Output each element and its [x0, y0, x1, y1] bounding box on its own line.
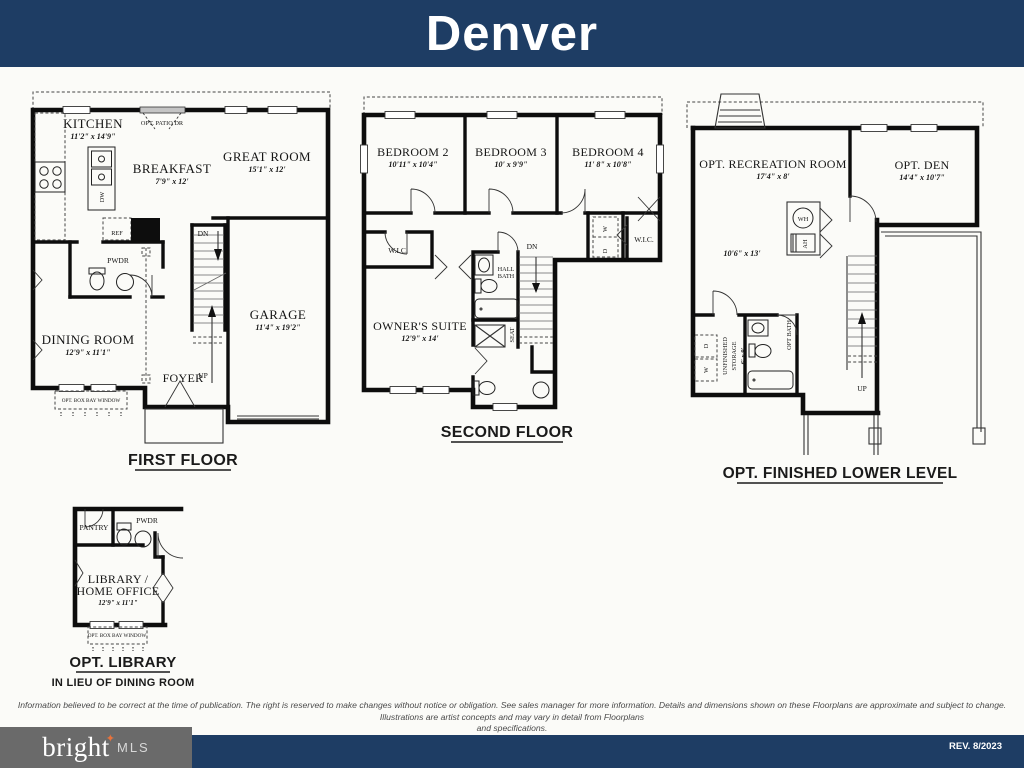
- powder-label: PWDR: [136, 516, 158, 525]
- bedroom3-dim: 10' x 9'9": [495, 160, 528, 169]
- first-floor-title: FIRST FLOOR: [128, 452, 238, 469]
- garage-label: GARAGE: [250, 307, 307, 322]
- brand-text: bright: [42, 732, 110, 763]
- hall-bath-label-1: HALL: [498, 266, 515, 273]
- star-icon: ✦: [106, 732, 115, 745]
- up-label: UP: [857, 384, 867, 393]
- stairs-second-floor: [519, 257, 553, 343]
- second-floor-walls: [364, 97, 662, 407]
- box-bay-label: OPT. BOX BAY WINDOW: [88, 633, 147, 639]
- owners-suite-dim: 12'9" x 14': [402, 334, 440, 343]
- first-floor-labels: KITCHEN 11'2" x 14'9" OPT. PATIO DR BREA…: [42, 116, 311, 470]
- wh-label: WH: [798, 216, 809, 223]
- second-floor-doors: [385, 189, 660, 374]
- sink: [117, 274, 134, 291]
- first-floor-plan: KITCHEN 11'2" x 14'9" OPT. PATIO DR BREA…: [15, 85, 350, 485]
- second-floor-title: SECOND FLOOR: [441, 424, 574, 441]
- floorplan-sheet: Denver: [0, 0, 1024, 768]
- dryer-label: D: [602, 248, 609, 253]
- wic-right-label: W.I.C.: [634, 235, 654, 244]
- storage-dim: 6' x 9': [740, 348, 747, 365]
- library-subtitle: IN LIEU OF DINING ROOM: [52, 677, 195, 689]
- library-doors: [85, 509, 183, 558]
- disclaimer-line-1: Information believed to be correct at th…: [0, 700, 1024, 723]
- hall-bath-label-2: BATH: [498, 273, 515, 280]
- seat-label: SEAT: [509, 327, 516, 342]
- dryer-label: D: [703, 343, 710, 348]
- owners-suite-label: OWNER'S SUITE: [373, 319, 467, 333]
- garage-door: [237, 416, 319, 419]
- sink: [533, 382, 549, 398]
- washer-label: W: [703, 367, 710, 373]
- bedroom3-label: BEDROOM 3: [475, 145, 547, 159]
- box-bay-label: OPT. BOX BAY WINDOW: [62, 398, 121, 404]
- dn-label: DN: [198, 229, 209, 238]
- dw-label: DW: [99, 192, 106, 203]
- breakfast-dim: 7'9" x 12': [156, 177, 190, 186]
- library-label-2: HOME OFFICE: [77, 584, 160, 598]
- storage-label-2: STORAGE: [731, 341, 738, 370]
- great-room-label: GREAT ROOM: [223, 149, 311, 164]
- bulkhead: [715, 94, 765, 128]
- stairs-first-floor: [193, 231, 226, 383]
- bright-mls-logo: bright✦MLS: [0, 727, 192, 768]
- library-dim: 12'9" x 11'1": [98, 599, 137, 607]
- rec-room-label: OPT. RECREATION ROOM: [699, 157, 846, 171]
- wic-left-label: W.I.C.: [388, 246, 408, 255]
- toilet: [90, 272, 104, 290]
- brand-suffix: MLS: [117, 740, 150, 755]
- ah-label: AH: [802, 239, 809, 249]
- storage-label-1: UNFINISHED: [722, 337, 729, 375]
- washer-label: W: [602, 226, 609, 232]
- library-title: OPT. LIBRARY: [69, 654, 176, 671]
- bedroom4-dim: 11' 8" x 10'8": [585, 160, 632, 169]
- garage-dim: 11'4" x 19'2": [256, 323, 301, 332]
- stoop: [145, 409, 223, 443]
- lower-level-title: OPT. FINISHED LOWER LEVEL: [723, 465, 958, 482]
- kitchen-dim: 11'2" x 14'9": [71, 132, 116, 141]
- dining-room-dim: 12'9" x 11'1": [66, 348, 111, 357]
- up-label: UP: [198, 371, 208, 380]
- bedroom2-dim: 10'11" x 10'4": [389, 160, 438, 169]
- stove: [35, 162, 65, 192]
- den-label: OPT. DEN: [895, 158, 950, 172]
- dn-label: DN: [527, 242, 538, 251]
- stairs-lower-level: [847, 256, 877, 378]
- opt-patio-door-label: OPT. PATIO DR: [141, 120, 184, 127]
- rec-room-dim: 17'4" x 8': [757, 172, 791, 181]
- area-dim: 10'6" x 13': [724, 249, 762, 258]
- pantry-label: PANTRY: [80, 523, 109, 532]
- plan-title: Denver: [426, 6, 598, 62]
- opt-bath-label: OPT BATH: [786, 320, 793, 350]
- library-bay-window: [88, 627, 147, 651]
- powder-label: PWDR: [107, 256, 129, 265]
- lower-level-plan: OPT. RECREATION ROOM 17'4" x 8' OPT. DEN…: [685, 88, 1024, 488]
- second-floor-plan: BEDROOM 2 10'11" x 10'4" BEDROOM 3 10' x…: [355, 85, 675, 450]
- bedroom2-label: BEDROOM 2: [377, 145, 449, 159]
- den-dim: 14'4" x 10'7": [899, 173, 944, 182]
- lower-level-walls: [687, 102, 985, 455]
- library-plan: PANTRY PWDR LIBRARY / HOME OFFICE 12'9" …: [55, 495, 260, 700]
- laundry-storage: [695, 335, 717, 381]
- kitchen-label: KITCHEN: [63, 116, 123, 131]
- ref-label: REF: [111, 230, 123, 237]
- bedroom4-label: BEDROOM 4: [572, 145, 644, 159]
- great-room-dim: 15'1" x 12': [249, 165, 287, 174]
- revision-date: REV. 8/2023: [949, 741, 1002, 752]
- breakfast-label: BREAKFAST: [133, 161, 211, 176]
- header-band: Denver: [0, 0, 1024, 67]
- lower-level-labels: OPT. RECREATION ROOM 17'4" x 8' OPT. DEN…: [699, 157, 957, 483]
- dining-room-label: DINING ROOM: [42, 332, 135, 347]
